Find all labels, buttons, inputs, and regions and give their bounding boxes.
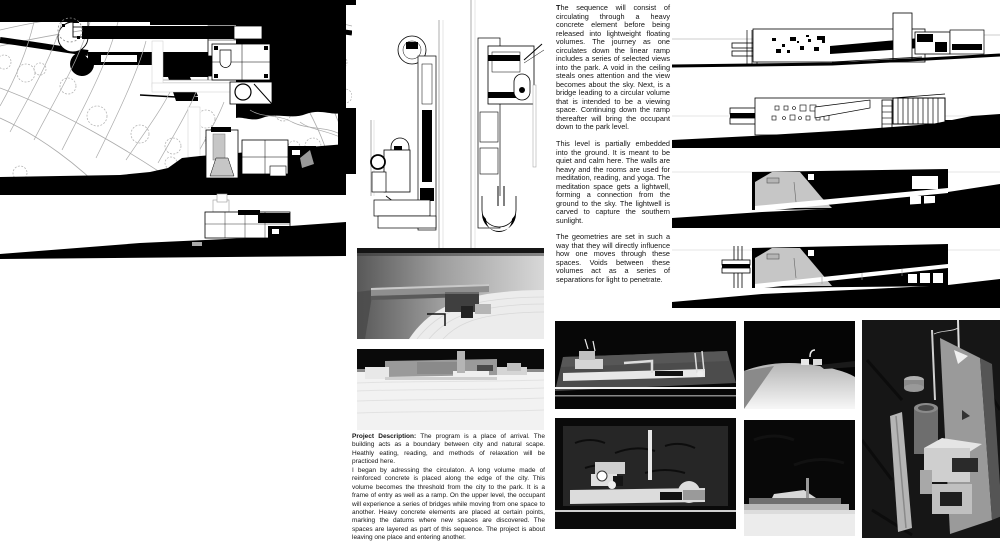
elevation-4: [672, 244, 1000, 308]
elevation-3: [672, 169, 1000, 228]
model-photo-3: [744, 321, 855, 409]
project-description-body: I began by adressing the circulaton. A l…: [352, 467, 545, 542]
portfolio-board: Project Description: The program is a pl…: [0, 0, 1000, 547]
sequence-paragraph-3: The geometries are set in such a way tha…: [556, 233, 670, 284]
sequence-text: The sequence will consist of circulating…: [556, 4, 670, 292]
project-description: Project Description: The program is a pl…: [352, 433, 545, 543]
vertical-plan-right: [478, 38, 544, 232]
model-photo-top: [357, 248, 544, 339]
section-tower: [206, 127, 238, 178]
model-photo-1: [555, 321, 736, 409]
contour-plan-building: [58, 18, 272, 157]
project-description-text: Project Description: The program is a pl…: [352, 433, 545, 543]
model-photo-5: [862, 320, 1000, 538]
section-gap: [0, 195, 356, 202]
project-description-label: Project Description:: [352, 433, 416, 440]
elevation-1: [672, 13, 1000, 66]
vertical-plan-left: [371, 36, 436, 230]
section-cut-lines: [439, 0, 475, 248]
model-photo-middle: [357, 349, 544, 430]
section-lower: [0, 194, 346, 259]
model-photo-4: [744, 420, 855, 536]
sequence-paragraph-2: This level is partially embedded into th…: [556, 140, 670, 225]
elevation-drawings: [672, 2, 1000, 312]
sequence-paragraph-1: The sequence will consist of circulating…: [556, 4, 670, 132]
contour-plan-and-sections-drawing: [0, 0, 356, 259]
model-photo-2: [555, 418, 736, 529]
vertical-plan-drawings: [348, 0, 560, 248]
elevation-2: [672, 94, 1000, 148]
